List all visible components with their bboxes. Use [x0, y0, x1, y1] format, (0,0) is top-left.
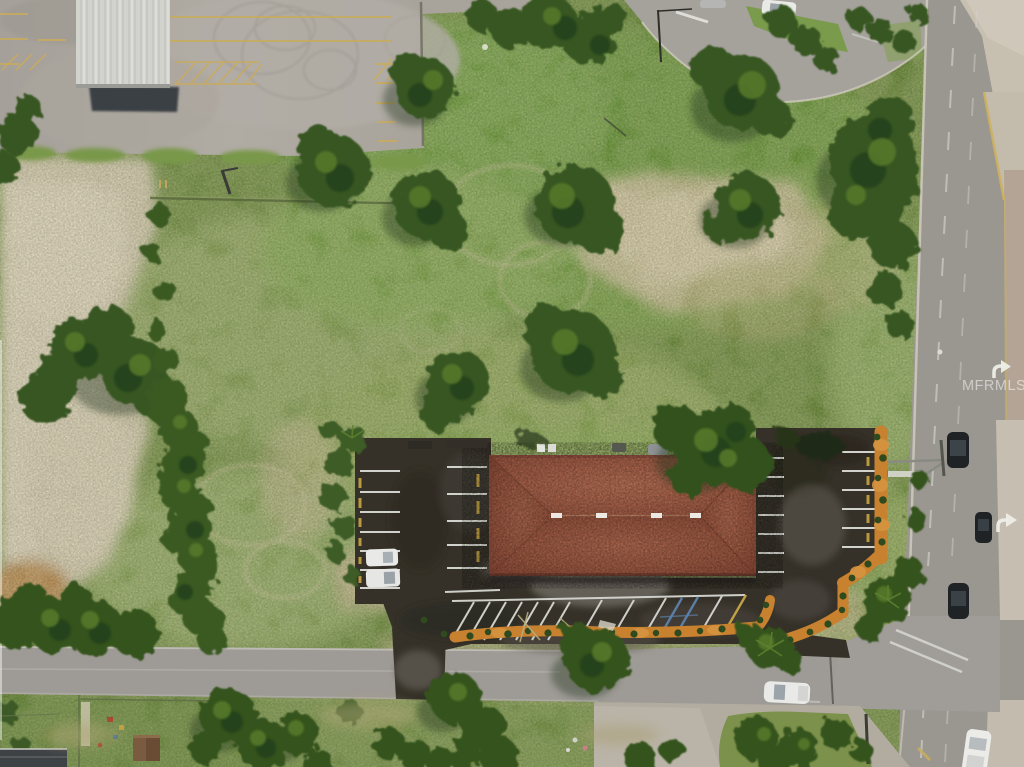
- svg-text:MFRMLS: MFRMLS: [962, 378, 1024, 394]
